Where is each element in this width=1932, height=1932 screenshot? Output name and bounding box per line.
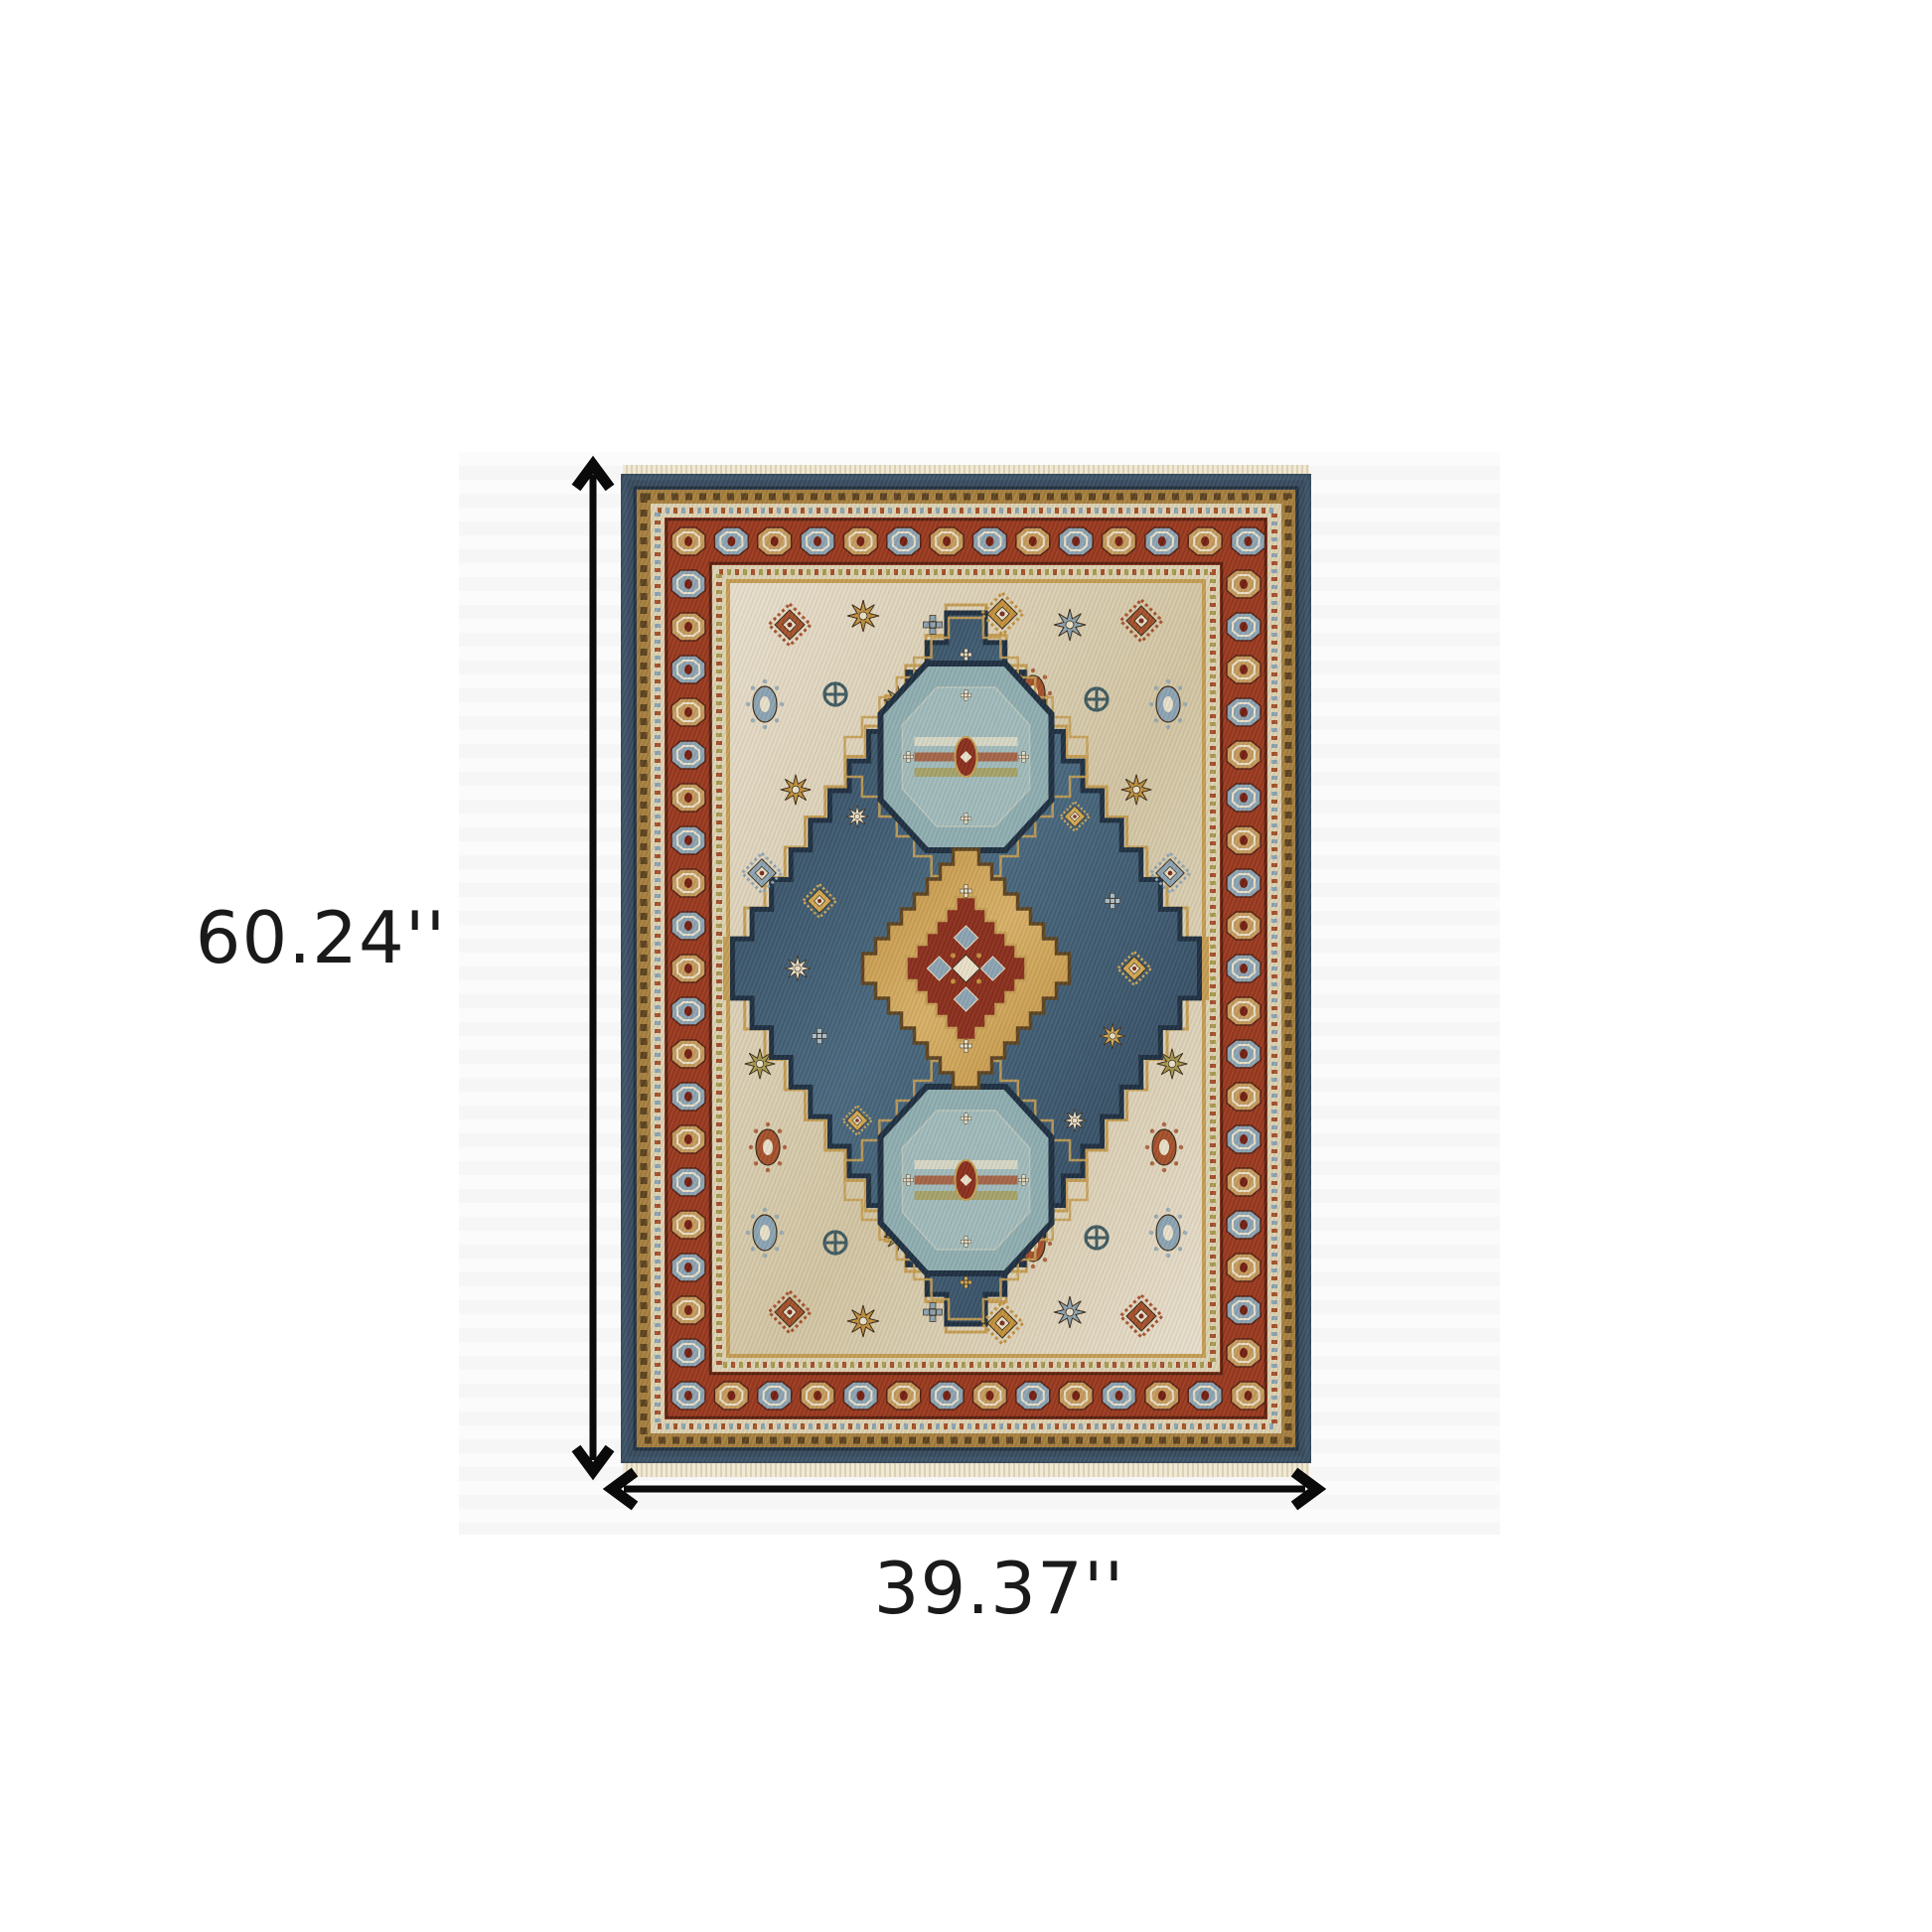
rug-fringe-bottom <box>623 1462 1309 1477</box>
rug-illustration <box>621 474 1311 1463</box>
height-label: 60.24'' <box>196 902 447 973</box>
rug-image <box>621 474 1311 1463</box>
width-label: 39.37'' <box>874 1553 1125 1624</box>
